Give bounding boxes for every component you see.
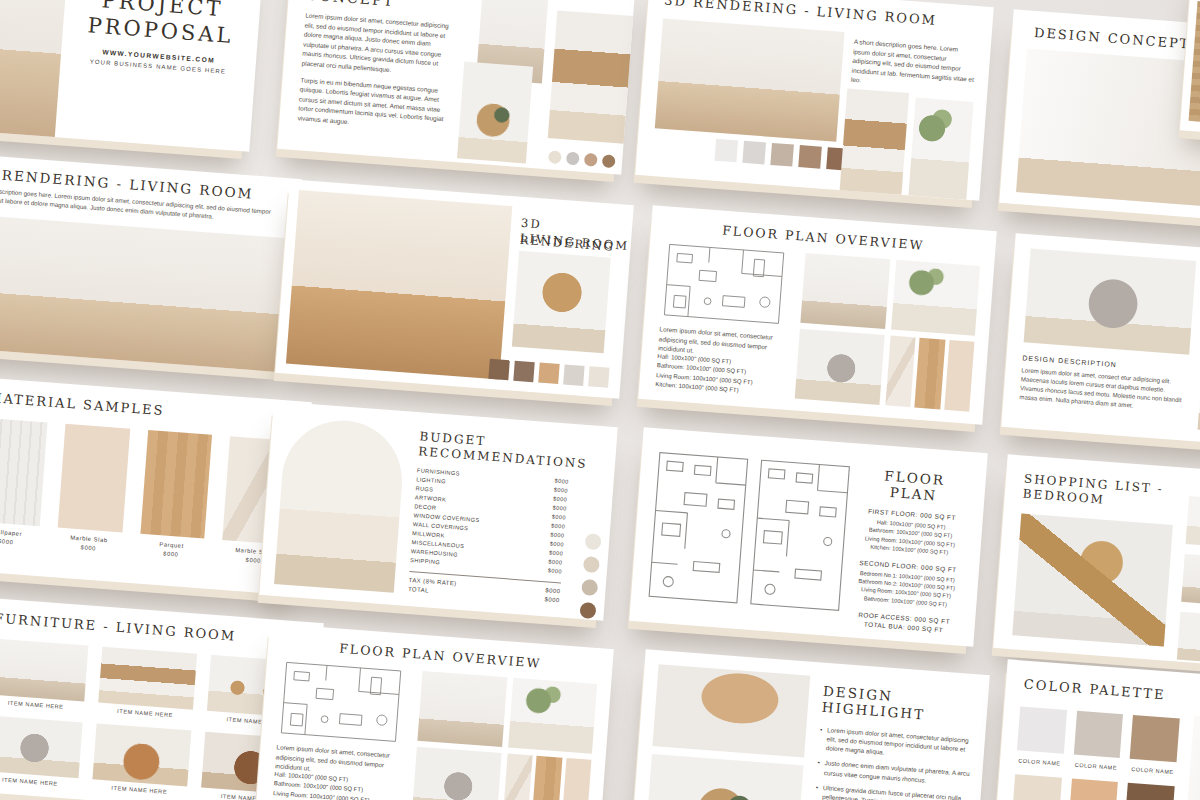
slide-design-concept-photo: DESIGN CONCEPT — [999, 9, 1200, 228]
gray-chair-plant-photo — [1024, 248, 1197, 354]
color-swatch — [588, 366, 609, 387]
wood-texture-photo — [1189, 1, 1200, 130]
living-room-plant-photo — [508, 678, 598, 754]
palette-swatch — [1017, 706, 1067, 753]
color-swatch — [488, 359, 509, 380]
furniture-item-photo — [98, 647, 198, 710]
color-swatch — [581, 579, 598, 596]
color-swatch — [583, 556, 600, 573]
palette-swatch — [1125, 783, 1175, 800]
budget-title-line2: RECOMMENDATIONS — [418, 444, 588, 471]
living-room-photo — [655, 18, 845, 141]
living-room-plant-photo — [891, 260, 981, 336]
parquet-sample-photo — [140, 430, 212, 539]
slide-floor-plan-overview-2: FLOOR PLAN OVERVIEW Lorem ipsum dolor si… — [255, 623, 614, 800]
design-concept-paragraph-2: Turpis in eu mi bibendum neque egestas c… — [297, 75, 450, 134]
rendering-description: A short description goes here. Lorem ips… — [851, 37, 977, 94]
gray-chair-photo — [795, 329, 885, 405]
budget-item-value: $000 — [547, 567, 562, 577]
material-name: Wallpaper — [0, 529, 22, 537]
floor-plan-sketch — [660, 242, 787, 325]
wooden-chair-photo — [1177, 612, 1200, 671]
floor-plan-title: FLOOR PLAN — [857, 466, 971, 506]
furniture-item-photo — [92, 724, 192, 787]
color-swatch — [538, 363, 559, 384]
interior-photo — [1016, 48, 1200, 215]
color-swatch — [563, 364, 584, 385]
dresser-photo — [417, 671, 507, 747]
color-palette-title: COLOR PALETTE — [1023, 677, 1166, 703]
dresser-photo — [800, 253, 890, 329]
budget-total-label: TOTAL — [408, 585, 429, 596]
slide-3d-rendering-living-room-2: 3D RENDERING - LIVING ROOM A short descr… — [0, 153, 302, 372]
template-mockup-canvas: Interior Design PROJECT PROPOSAL WWW.YOU… — [0, 0, 1200, 800]
color-swatch — [714, 139, 738, 163]
marble-sample-photo — [57, 424, 129, 533]
material-samples-title: MATERIAL SAMPLES — [0, 390, 165, 418]
living-room-photo — [0, 213, 297, 372]
material-price: $000 — [81, 544, 97, 551]
marble-sample-photo — [885, 336, 916, 408]
material-price: $000 — [246, 556, 262, 563]
palette-swatch — [1012, 774, 1062, 800]
floor-plan-sketch — [277, 660, 404, 743]
design-concept-paragraph-1: Lorem ipsum dolor sit amet, consectetur … — [301, 11, 455, 80]
material-name: Parquet — [159, 541, 184, 549]
slide-cover: Interior Design PROJECT PROPOSAL WWW.YOU… — [0, 0, 264, 152]
slide-budget-recommendations: BUDGET RECOMMENDATIONS FURNISHINGS$000 L… — [259, 401, 618, 620]
armchair-photo — [457, 62, 533, 164]
floor-plan-sketch-second — [749, 456, 852, 614]
slide-design-description: DESIGN DESCRIPTION Lorem ipsum dolor sit… — [1001, 233, 1200, 452]
parquet-sample-photo — [914, 338, 945, 410]
color-swatch — [798, 145, 822, 169]
wallpaper-sample-photo — [0, 418, 47, 527]
design-concept-title: DESIGN CONCEPT — [1034, 25, 1191, 52]
highlight-bullet: Lorem ipsum dolor sit amet, consectetur … — [819, 725, 974, 764]
marble-sample-photo — [502, 754, 533, 800]
furniture-item-photo — [0, 638, 88, 701]
color-swatch — [584, 153, 598, 167]
color-swatch — [602, 154, 616, 168]
palette-color-name: COLOR NAME — [1016, 756, 1063, 768]
material-name: Marble Slab — [70, 534, 108, 543]
palette-swatch — [1068, 779, 1118, 800]
chair-by-window-photo — [645, 754, 803, 800]
material-price: $000 — [0, 538, 14, 545]
bedroom-dresser-photo — [1181, 554, 1200, 613]
design-highlight-title: DESIGN HIGHLIGHT — [821, 683, 976, 726]
color-swatch — [585, 533, 602, 550]
arch-cabinet-photo — [274, 416, 406, 593]
living-room-photo — [1186, 496, 1200, 555]
floor-plan-sketch-first — [647, 448, 750, 606]
slide-floor-plan-overview: FLOOR PLAN OVERVIEW Lorem ipsum dolor si… — [638, 205, 997, 424]
design-description-body: Lorem ipsum dolor sit amet, consect etur… — [1019, 365, 1187, 414]
slide-3d-rendering-living-room: 3D RENDERING - LIVING ROOM A short descr… — [635, 0, 994, 201]
palette-swatch — [1130, 715, 1180, 762]
color-swatch — [548, 150, 562, 164]
palette-color-name: COLOR NAME — [1072, 761, 1119, 773]
parquet-sample-photo — [531, 756, 562, 800]
folding-chair-photo — [1012, 514, 1173, 647]
palette-swatch — [1073, 711, 1123, 758]
gray-chair-photo — [412, 747, 502, 800]
bedroom-photo — [548, 10, 633, 143]
color-swatch — [513, 361, 534, 382]
furniture-item-photo — [0, 715, 82, 778]
slide-floor-plan: FLOOR PLAN FIRST FLOOR: 000 SQ FT Hall: … — [629, 427, 988, 646]
color-swatch — [742, 141, 766, 165]
rattan-chair-photo — [512, 251, 611, 354]
material-price: $000 — [163, 550, 179, 557]
slide-design-highlight: DESIGN HIGHLIGHT Lorem ipsum dolor sit a… — [631, 649, 990, 800]
living-room-photo — [286, 190, 512, 380]
stone-sample-photo — [944, 340, 975, 412]
bedroom-photo — [840, 88, 909, 194]
budget-total-value: $000 — [544, 595, 560, 606]
interior-photo — [1184, 715, 1200, 800]
furniture-title: FURNITURE - LIVING ROOM — [0, 611, 237, 644]
plant-corner-photo — [908, 98, 973, 200]
slide-shopping-list-bedroom: SHOPPING LIST - BEDROOM — [993, 454, 1200, 673]
pampas-vase-photo — [653, 664, 811, 757]
color-swatch — [770, 143, 794, 167]
budget-item-label: SHIPPING — [410, 556, 441, 567]
color-swatch — [579, 602, 596, 619]
slide-design-concept: DESIGN CONCEPT Lorem ipsum dolor sit ame… — [277, 0, 636, 175]
slide-color-palette: COLOR PALETTE COLOR NAME COLOR NAME COLO… — [993, 659, 1200, 800]
palette-color-name: COLOR NAME — [1129, 765, 1176, 777]
color-swatch — [566, 152, 580, 166]
stone-sample-photo — [561, 758, 592, 800]
slide-3d-rendering-center: 3D RENDERING LIVING ROOM — [275, 179, 634, 398]
